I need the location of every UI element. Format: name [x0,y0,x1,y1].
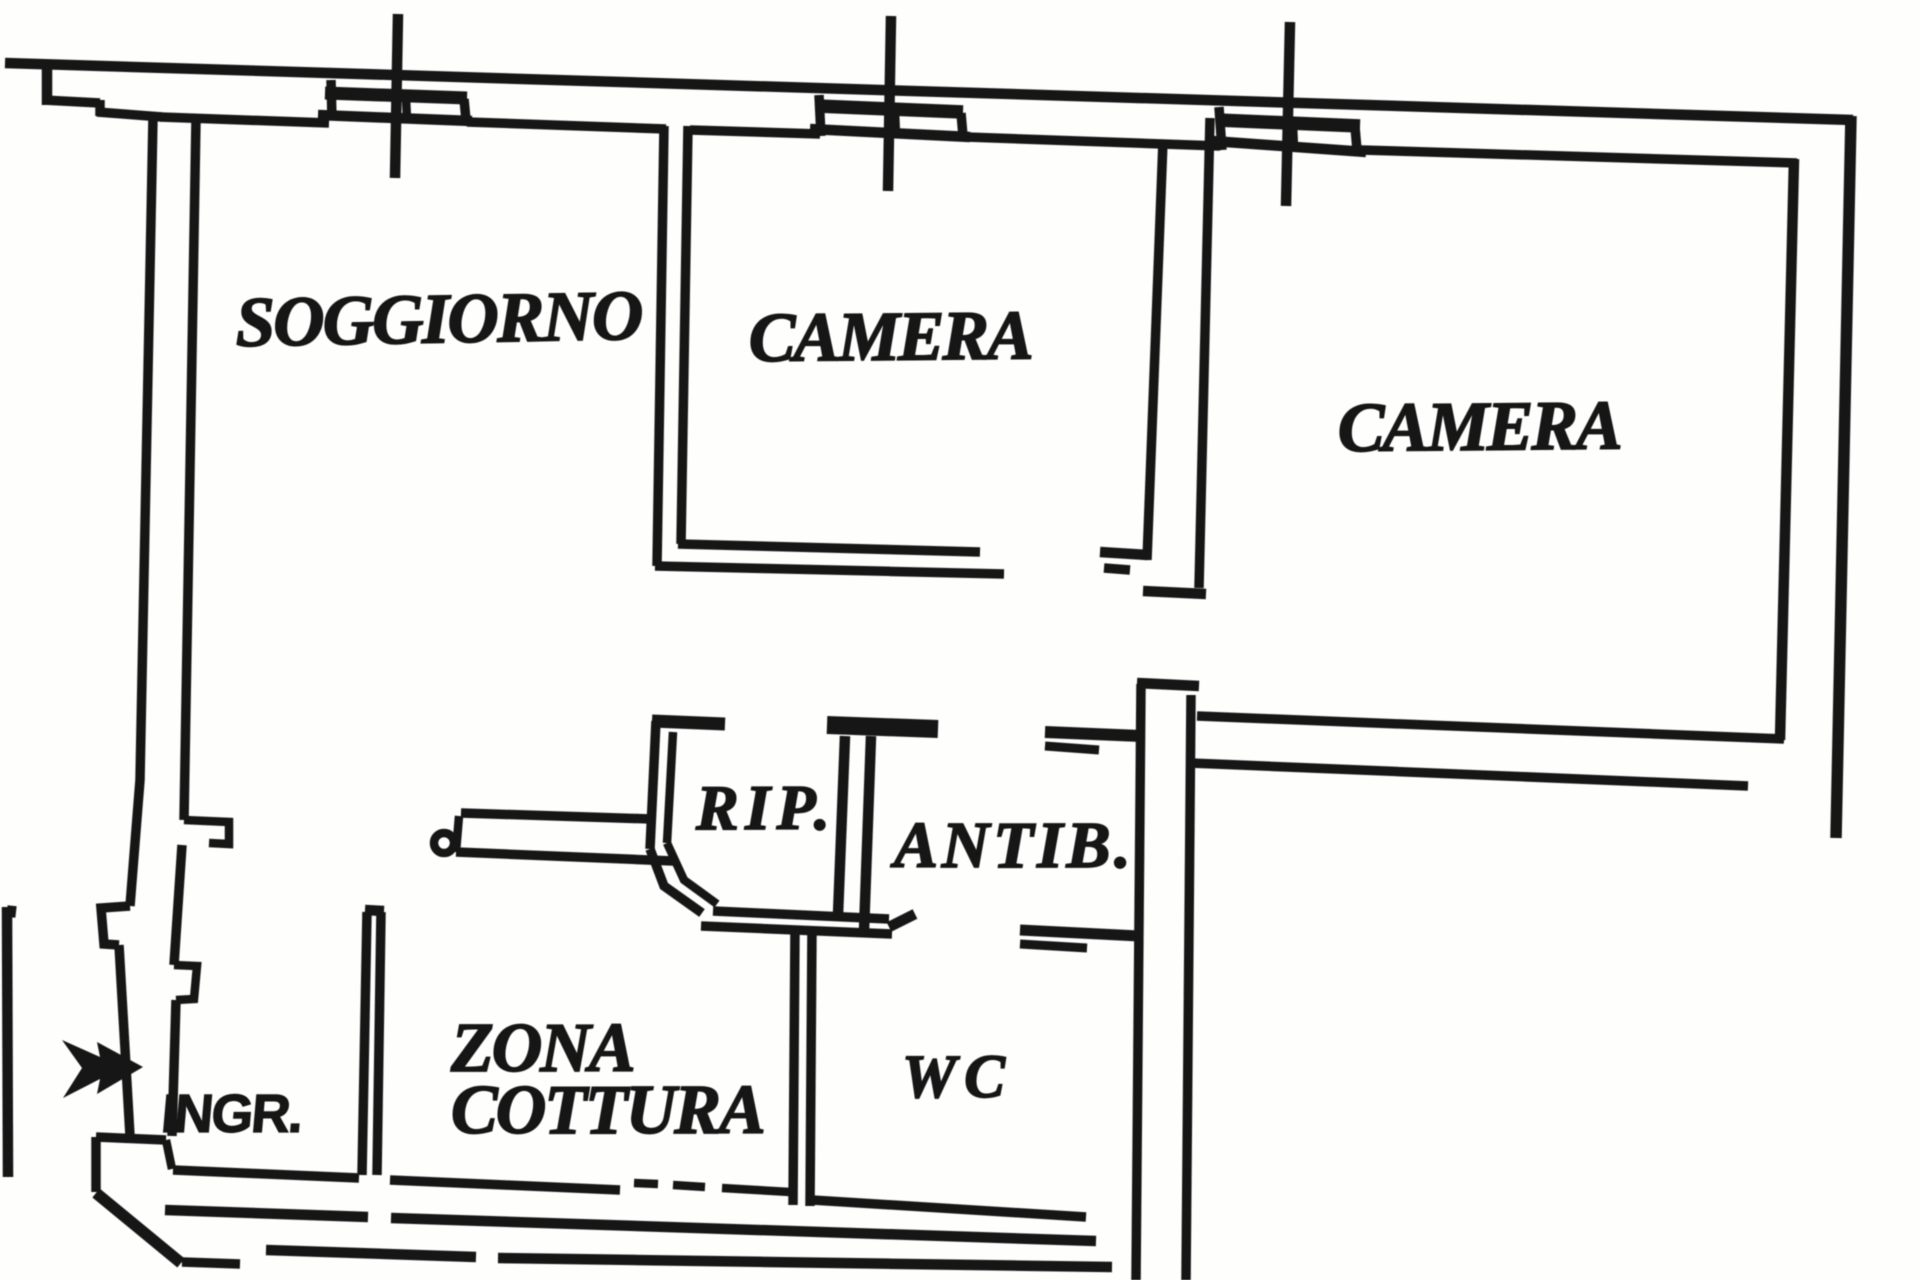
svg-text:COTTURA: COTTURA [451,1072,764,1149]
svg-text:RIP.: RIP. [695,772,836,843]
svg-text:CAMERA: CAMERA [748,298,1031,377]
svg-text:WC: WC [902,1044,1013,1111]
svg-text:SOGGIORNO: SOGGIORNO [235,277,643,362]
svg-text:ANTIB.: ANTIB. [890,809,1134,882]
svg-text:INGR.: INGR. [159,1084,304,1144]
svg-text:CAMERA: CAMERA [1337,388,1620,467]
